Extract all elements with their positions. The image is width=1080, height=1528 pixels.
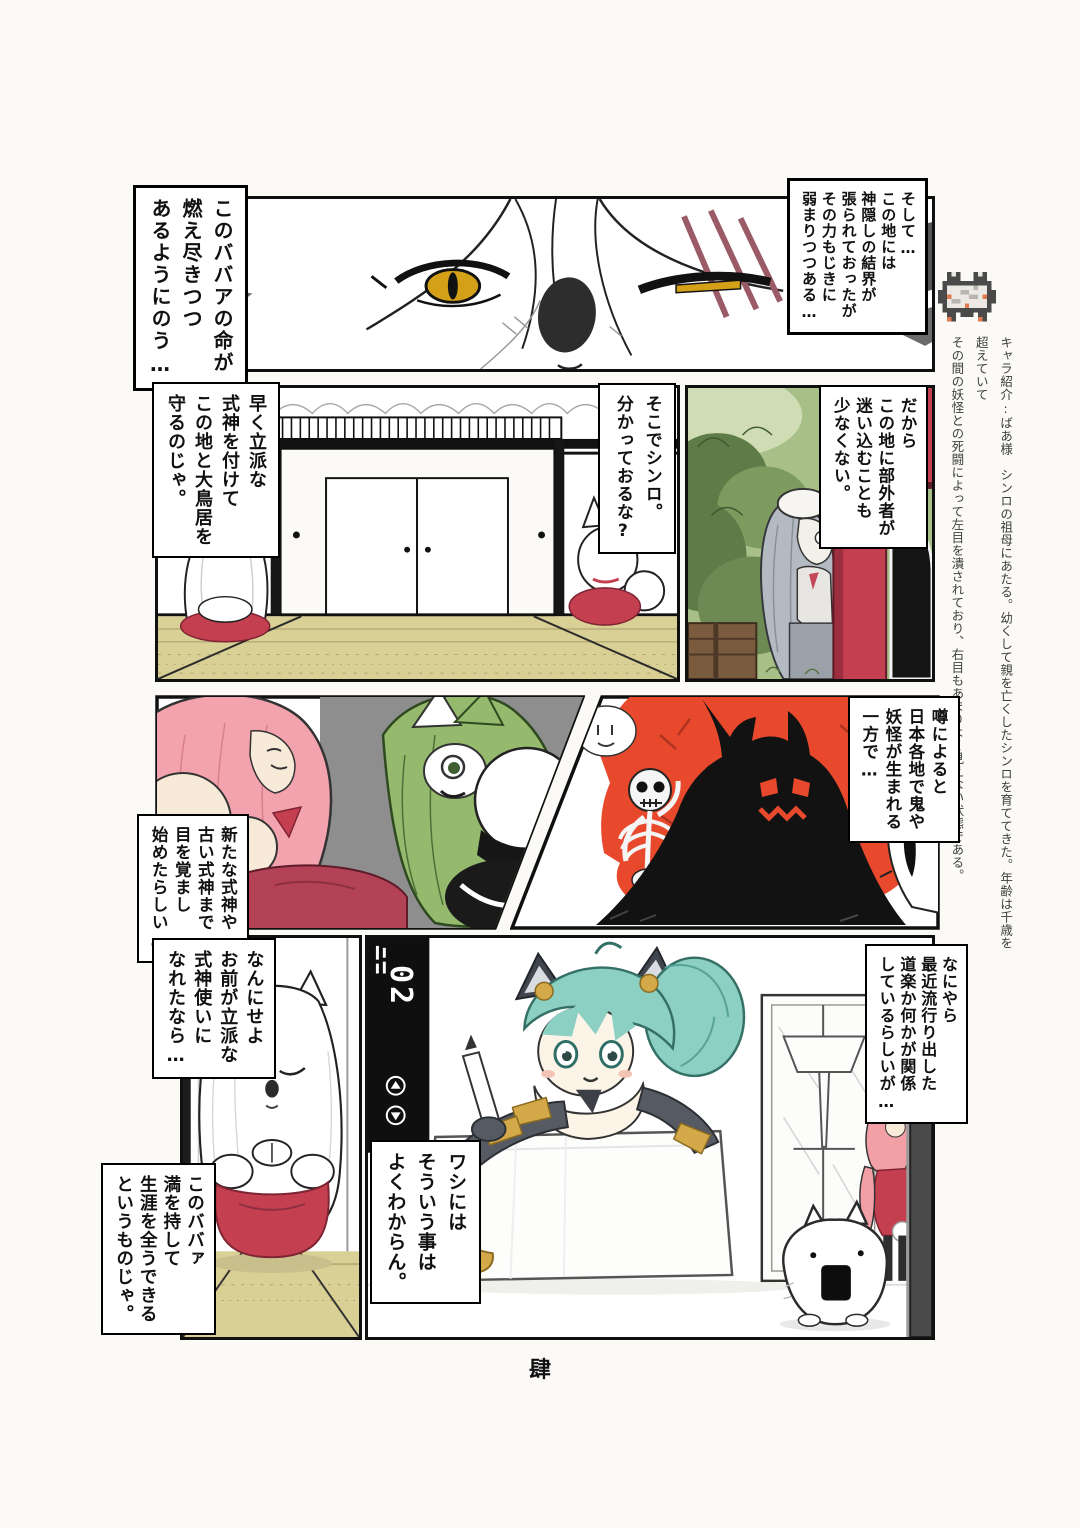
elevator-floor-display: 02 (378, 960, 418, 1012)
speech-bubble-rumor-yokai: 噂によると 日本各地で鬼や 妖怪が生まれる 一方で… (848, 696, 960, 843)
nose (534, 274, 601, 356)
ghost (576, 706, 636, 756)
bell-ornament (640, 974, 658, 992)
speech-bubble-barrier-weakening: そして… この地には 神隠しの結界が 張られておったが その力もじきに 弱まりつ… (787, 178, 928, 335)
speech-bubble-life-burning: このババアの命が 燃え尽きつつ あるようにのう… (133, 185, 248, 391)
dark-furniture (906, 1096, 932, 1337)
speech-bubble-outsiders: だから この地に部外者が 迷い込むことも 少なくない。 (819, 385, 928, 549)
manga-page: 02 このババアの命が 燃え尽きつつ あるようにのう… そして… この地には 神… (0, 0, 1080, 1528)
speech-bubble-anyway: なんにせよ お前が立派な 式神使いに なれたなら… (152, 938, 276, 1079)
speech-bubble-protect-land: 早く立派な 式神を付けて この地と大鳥居を 守るのじゃ。 (152, 382, 280, 558)
grandma-pixel-sprite-icon (938, 272, 996, 326)
page-number: 肆 (0, 1352, 1080, 1384)
speech-bubble-sokode-shinro: そこでシンロ。 分かっておるな? (598, 383, 676, 554)
speech-bubble-hobby-related: なにやら 最近流行り出した 道楽か何かが関係 しているらしいが… (865, 944, 968, 1124)
speech-bubble-dont-understand: ワシには そういう事は よくわからん。 (370, 1140, 481, 1304)
bell-ornament (535, 982, 553, 1000)
speech-bubble-life-complete: このババァ 満を持して 生涯を全うできる というものじゃ。 (101, 1163, 216, 1335)
character-intro-note: キャラ紹介:ばあ様 シンロの祖母にあたる。幼くして親を亡くしたシンロを育ててきた… (944, 336, 1017, 956)
